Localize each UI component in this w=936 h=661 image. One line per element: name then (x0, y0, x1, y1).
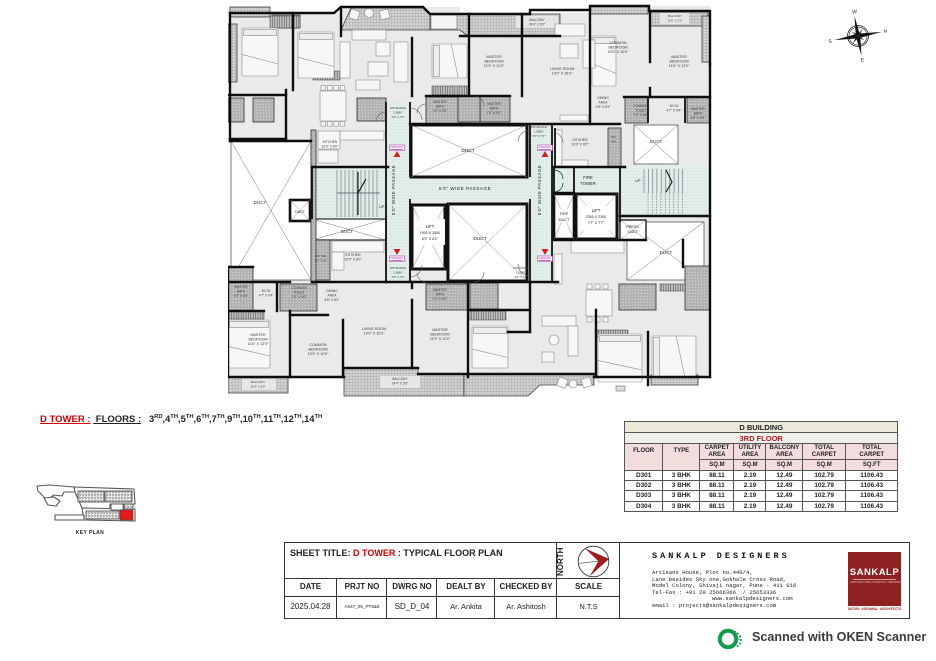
svg-text:10'0" X 10'0": 10'0" X 10'0" (608, 50, 630, 54)
svg-text:DRY BAL: DRY BAL (315, 254, 327, 258)
svg-text:AREA: AREA (599, 101, 609, 105)
svg-text:4'0" X 6'0": 4'0" X 6'0" (234, 294, 248, 298)
svg-text:BALCONY: BALCONY (392, 377, 408, 381)
svg-text:DUCT: DUCT (473, 236, 486, 242)
svg-text:ENTRANCE: ENTRANCE (513, 266, 529, 270)
svg-text:4'8" X 8'4": 4'8" X 8'4" (596, 105, 612, 109)
svg-text:UP: UP (379, 204, 385, 209)
svg-text:BALCONY: BALCONY (668, 14, 682, 18)
svg-text:5'0" WIDE PASSAGE: 5'0" WIDE PASSAGE (537, 165, 542, 215)
svg-text:13'0" X 16'3": 13'0" X 16'3" (552, 72, 574, 76)
svg-text:KEY PLAN: KEY PLAN (76, 530, 104, 536)
svg-text:MASTER: MASTER (234, 285, 248, 289)
svg-text:COMMON: COMMON (309, 343, 327, 347)
svg-text:LOBBY: LOBBY (516, 271, 525, 275)
svg-text:10'0" X 8'0": 10'0" X 8'0" (344, 258, 362, 262)
svg-text:DUCT: DUCT (341, 229, 354, 234)
svg-text:DUCT: DUCT (254, 200, 267, 205)
svg-text:BEDROOM: BEDROOM (308, 348, 327, 352)
svg-text:DUCT: DUCT (628, 230, 639, 234)
svg-text:10'0" X 10'0": 10'0" X 10'0" (308, 352, 330, 356)
svg-text:4'6" X 8'4": 4'6" X 8'4" (325, 298, 341, 302)
svg-text:MASTER: MASTER (433, 288, 447, 292)
svg-text:S: S (828, 39, 833, 46)
svg-text:24'4" X 5'0": 24'4" X 5'0" (529, 23, 545, 27)
svg-text:FIRE: FIRE (583, 175, 593, 180)
svg-text:TOILET: TOILET (635, 109, 646, 113)
svg-text:7'0" X 5'0": 7'0" X 5'0" (433, 109, 447, 113)
svg-text:BATH: BATH (490, 107, 499, 111)
svg-text:6'3" X 8'2": 6'3" X 8'2" (422, 237, 439, 241)
svg-text:BALCONY: BALCONY (251, 380, 265, 384)
svg-text:4'7" X 5'4": 4'7" X 5'4" (259, 294, 273, 298)
svg-text:10'0" X 8'0": 10'0" X 8'0" (322, 145, 340, 149)
svg-text:LIFT: LIFT (426, 224, 435, 229)
svg-text:BATH: BATH (694, 112, 703, 116)
svg-text:LIVING ROOM: LIVING ROOM (550, 67, 575, 71)
svg-text:DINING: DINING (597, 96, 609, 100)
svg-text:5'0" WIDE PASSAGE: 5'0" WIDE PASSAGE (391, 165, 396, 215)
svg-text:MASTER: MASTER (432, 328, 448, 332)
svg-text:7'0" X 5'0": 7'0" X 5'0" (292, 295, 308, 299)
svg-text:24'4" X 5'0": 24'4" X 5'0" (392, 382, 408, 386)
svg-text:BATH: BATH (436, 105, 445, 109)
svg-text:6'0" X 7'0": 6'0" X 7'0" (392, 115, 405, 119)
svg-text:4'0" X 6'0": 4'0" X 6'0" (691, 116, 705, 120)
svg-text:BEDROOM: BEDROOM (430, 333, 449, 337)
svg-text:COMMON: COMMON (633, 104, 649, 108)
svg-text:KITCHEN: KITCHEN (323, 140, 338, 144)
svg-text:MASTER: MASTER (671, 55, 687, 59)
svg-text:MASTER: MASTER (691, 107, 705, 111)
svg-text:1900 X 2500: 1900 X 2500 (420, 231, 440, 235)
svg-text:7'0" X 5'0": 7'0" X 5'0" (487, 111, 501, 115)
svg-text:W.I.W: W.I.W (262, 289, 271, 293)
svg-text:11'0" X 2'0": 11'0" X 2'0" (250, 385, 265, 389)
svg-text:DINING: DINING (326, 289, 338, 293)
svg-text:6'0" X 7'0": 6'0" X 7'0" (533, 134, 546, 138)
svg-text:10'0" X 8'0": 10'0" X 8'0" (571, 143, 589, 147)
svg-text:BATH: BATH (436, 293, 445, 297)
svg-text:LIFT: LIFT (592, 208, 601, 213)
svg-text:5'0" WIDE PASSAGE: 5'0" WIDE PASSAGE (439, 186, 491, 191)
svg-text:ENTRANCE: ENTRANCE (390, 106, 406, 110)
svg-text:FIRE: FIRE (560, 212, 569, 216)
svg-text:MASTER: MASTER (250, 333, 266, 337)
svg-text:BEDROOM: BEDROOM (608, 46, 627, 50)
svg-text:11'6" X 13'0": 11'6" X 13'0" (669, 64, 690, 68)
svg-text:COMMON: COMMON (291, 286, 307, 290)
svg-text:MASTER: MASTER (486, 55, 502, 59)
svg-text:LIVING ROOM: LIVING ROOM (362, 327, 387, 331)
svg-text:BEDROOM: BEDROOM (669, 60, 688, 64)
svg-text:E: E (860, 57, 865, 64)
svg-text:7'0" X 5'0": 7'0" X 5'0" (433, 297, 447, 301)
svg-text:11'6" X 13'0": 11'6" X 13'0" (248, 342, 269, 346)
svg-text:11'6" X 2'0": 11'6" X 2'0" (667, 19, 682, 23)
svg-text:6'0" X 7'0": 6'0" X 7'0" (392, 275, 405, 279)
svg-text:DUCT: DUCT (461, 148, 474, 154)
svg-text:BALCONY: BALCONY (529, 18, 545, 22)
svg-text:4'7" X 5'4": 4'7" X 5'4" (667, 109, 683, 113)
svg-text:BAL: BAL (611, 140, 617, 144)
svg-text:DUCT: DUCT (295, 210, 304, 214)
svg-text:DUCT: DUCT (650, 139, 662, 144)
svg-text:7'7" X 7'7": 7'7" X 7'7" (588, 221, 605, 225)
svg-text:W.I.W: W.I.W (670, 104, 680, 108)
svg-text:TOWER: TOWER (580, 181, 596, 186)
svg-text:TOILET: TOILET (293, 291, 304, 295)
svg-text:LOBBY: LOBBY (534, 130, 543, 134)
svg-text:KITCHEN: KITCHEN (346, 253, 361, 257)
svg-text:2'6" X 6'5": 2'6" X 6'5" (315, 259, 328, 263)
svg-text:LOBBY: LOBBY (393, 111, 402, 115)
svg-text:13'0" X 16'3": 13'0" X 16'3" (364, 332, 386, 336)
svg-text:W: W (852, 9, 858, 16)
svg-text:DRY: DRY (611, 135, 617, 139)
svg-text:BEDROOM: BEDROOM (248, 338, 267, 342)
svg-text:ENTRANCE: ENTRANCE (390, 266, 406, 270)
svg-text:DUCT: DUCT (660, 250, 673, 255)
svg-text:MASTER: MASTER (433, 100, 447, 104)
svg-text:7'0" X 5'0": 7'0" X 5'0" (634, 113, 650, 117)
svg-text:DUCT: DUCT (559, 218, 570, 222)
svg-text:6'0" X 7'0": 6'0" X 7'0" (515, 275, 528, 279)
svg-text:LOBBY: LOBBY (393, 271, 402, 275)
svg-text:AREA: AREA (328, 294, 338, 298)
svg-text:COMMON: COMMON (609, 41, 627, 45)
svg-text:PRESS.: PRESS. (626, 225, 639, 229)
svg-text:11'0" X 11'0": 11'0" X 11'0" (430, 337, 451, 341)
svg-text:N: N (883, 28, 888, 35)
svg-text:KITCHEN: KITCHEN (573, 138, 588, 142)
svg-text:2300 X 2300: 2300 X 2300 (586, 215, 606, 219)
svg-text:BATH: BATH (237, 290, 246, 294)
svg-text:UP: UP (635, 178, 641, 183)
svg-text:BEDROOM: BEDROOM (484, 60, 503, 64)
svg-text:11'0" X 11'0": 11'0" X 11'0" (484, 64, 505, 68)
svg-text:MASTER: MASTER (487, 102, 501, 106)
svg-text:ENTRANCE: ENTRANCE (531, 125, 547, 129)
